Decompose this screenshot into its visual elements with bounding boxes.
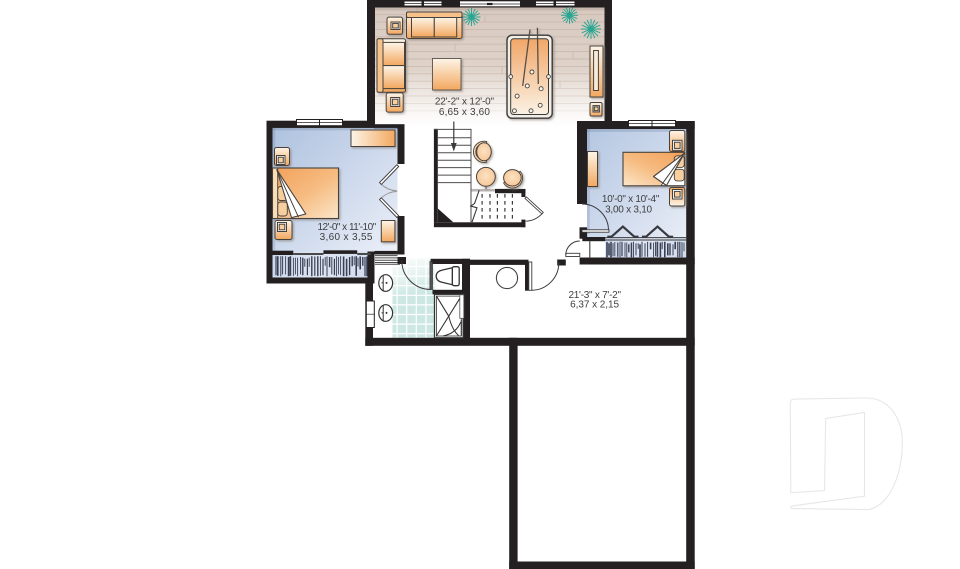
svg-text:6,65 x 3,60: 6,65 x 3,60: [439, 107, 490, 118]
svg-text:6,37 x 2,15: 6,37 x 2,15: [570, 300, 619, 311]
svg-text:3,60 x 3,55: 3,60 x 3,55: [320, 232, 373, 243]
svg-text:3,00 x 3,10: 3,00 x 3,10: [605, 204, 652, 215]
